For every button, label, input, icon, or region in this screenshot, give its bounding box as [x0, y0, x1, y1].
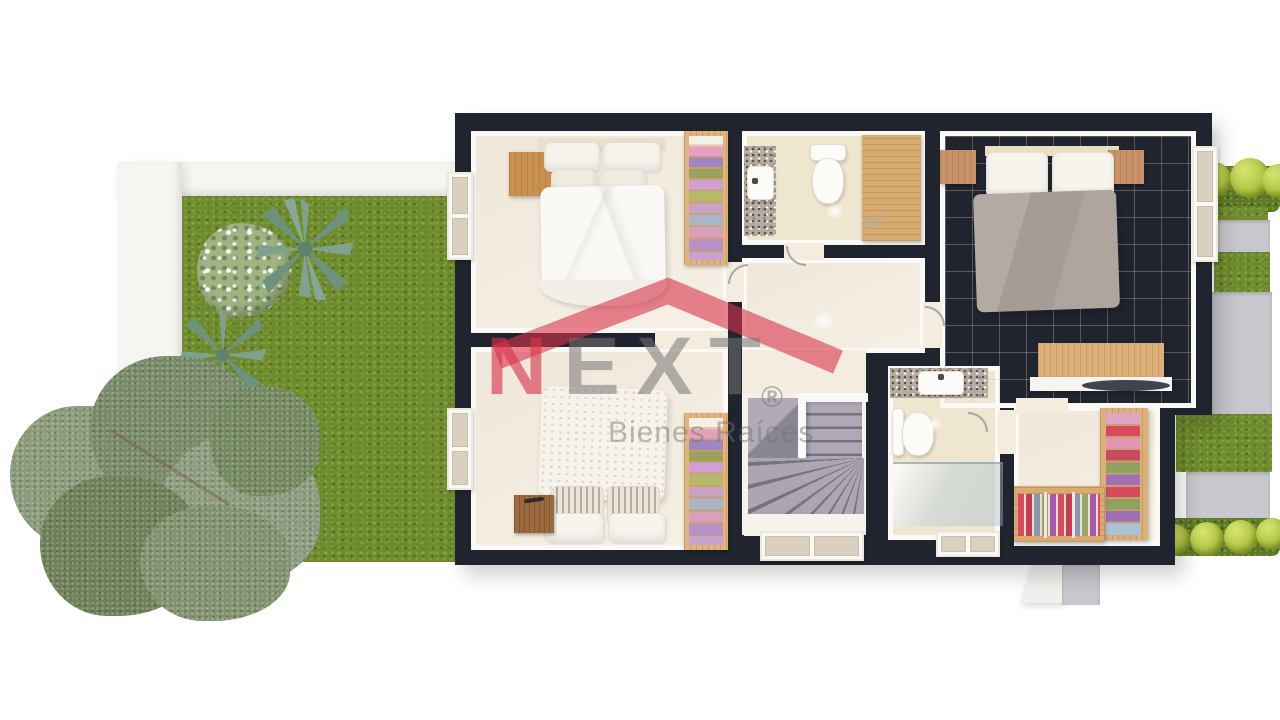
wardrobe-divider — [1044, 492, 1047, 538]
agave-plant-large — [250, 196, 360, 302]
tree-canopy-blob — [210, 386, 320, 496]
nightstand — [940, 150, 976, 184]
faucet — [938, 374, 944, 380]
pillow — [603, 142, 661, 172]
door-opening — [655, 331, 728, 349]
shower-glass-panel — [893, 462, 1003, 526]
wardrobe-clothes-stack — [1106, 413, 1140, 535]
round-shrub — [1190, 522, 1224, 556]
side-grass-strip — [1214, 252, 1270, 292]
tree-canopy-blob — [140, 506, 290, 621]
window-pane — [941, 536, 966, 552]
side-concrete-pad — [1186, 472, 1270, 520]
window-pane — [452, 218, 468, 255]
window-pane — [765, 536, 810, 556]
round-shrub — [1256, 518, 1280, 550]
wardrobe-divider — [1072, 492, 1075, 538]
side-grass-strip — [1176, 414, 1272, 472]
door-opening — [1016, 398, 1068, 414]
pillow — [608, 513, 666, 543]
round-shrub — [1224, 520, 1258, 554]
window-pane — [1197, 206, 1213, 257]
window-pane — [1197, 151, 1213, 202]
toilet-bowl — [812, 158, 844, 204]
entry-pillar — [1062, 563, 1100, 605]
bathroom-2-window — [936, 531, 1000, 557]
pillow — [986, 152, 1048, 198]
window-pane — [452, 413, 468, 447]
pillow — [544, 142, 600, 172]
window-pane — [452, 451, 468, 485]
bed-2-duvet — [538, 386, 668, 502]
floor-plan-render: NEXT ® Bienes Raíces — [0, 0, 1280, 720]
side-concrete-pad — [1214, 220, 1270, 252]
stair-hall-window — [760, 531, 864, 561]
hanging-clothes — [1018, 494, 1100, 536]
master-window — [1192, 146, 1218, 262]
dresser-desk — [1038, 343, 1164, 379]
stair-railing-top — [796, 393, 868, 402]
faucet — [752, 178, 758, 184]
bedroom-2-window — [447, 408, 473, 490]
hall-floor — [742, 258, 925, 353]
bedroom-1-window — [447, 172, 473, 260]
window-pane — [814, 536, 859, 556]
stair-landing — [748, 398, 798, 460]
laptop — [1082, 380, 1170, 391]
bed-1-duvet — [540, 185, 666, 287]
door-opening — [998, 410, 1016, 454]
sink — [747, 166, 774, 200]
side-grass-strip — [1214, 206, 1268, 220]
ceiling-light — [812, 310, 834, 332]
closet-1-clothes — [689, 136, 723, 260]
tree — [10, 346, 332, 626]
master-bed-duvet — [973, 190, 1120, 313]
hall-floor-lower — [742, 350, 866, 395]
side-concrete-pad — [1212, 292, 1272, 414]
stair-winder-steps — [748, 458, 864, 514]
ceiling-light — [926, 416, 942, 432]
ceiling-light — [826, 202, 844, 220]
window-pane — [970, 536, 995, 552]
closet-2-clothes — [689, 418, 723, 545]
window-pane — [452, 177, 468, 214]
